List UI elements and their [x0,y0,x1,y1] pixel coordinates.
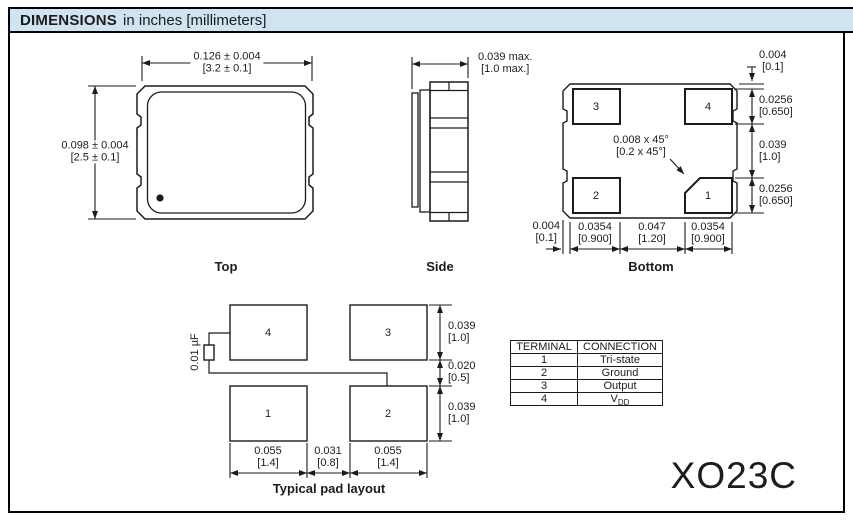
dim-bottom-bottom-2: 0.047 [1.20] [638,222,666,245]
dim-inches: 0.039 [448,321,476,333]
dim-layout-bottom-0: 0.055 [1.4] [254,446,282,469]
table-header-row: TERMINAL CONNECTION [511,341,663,354]
connection-cell: Output [578,380,663,393]
dim-mm: [3.2 ± 0.1] [193,63,260,75]
dim-inches: 0.047 [638,222,666,234]
dim-layout-bottom-1: 0.031 [0.8] [314,446,342,469]
dim-inches: 0.0256 [759,95,793,107]
pin1-marker-dot [156,194,163,201]
dim-inches: 0.098 ± 0.004 [61,141,128,153]
top-view [88,56,313,219]
dim-layout-bottom-2: 0.055 [1.4] [374,446,402,469]
chamfer-leader-arrow [670,159,684,174]
dim-inches: 0.039 max. [478,52,532,64]
side-view-cover [412,93,418,207]
dim-inches: 0.126 ± 0.004 [193,52,260,64]
vdd-subscript: DD [618,398,630,407]
bottom-pad-2-label: 2 [593,190,599,202]
dim-mm: [0.1] [532,233,560,245]
dim-inches: 0.0256 [759,184,793,196]
layout-pad-2-label: 2 [385,408,391,420]
side-view-label: Side [426,259,453,274]
dim-bottom-right-0: 0.004 [0.1] [759,50,787,73]
dim-bottom-right-3: 0.0256 [0.650] [759,184,793,207]
bottom-view-label: Bottom [628,259,674,274]
layout-pad-4-label: 4 [265,327,271,339]
part-number: XO23C [671,457,797,495]
layout-pad-1-label: 1 [265,408,271,420]
table-row: 3 Output [511,380,663,393]
dim-inches: 0.004 [759,50,787,62]
pad-layout-label: Typical pad layout [273,481,385,496]
dim-side-height: 0.039 max. [1.0 max.] [478,52,532,75]
capacitor-value-label: 0.01 µF [189,333,201,371]
table-header-connection: CONNECTION [578,341,663,354]
dim-mm: [0.650] [759,107,793,119]
dim-layout-right-2: 0.039 [1.0] [448,402,476,425]
dim-mm: [2.5 ± 0.1] [61,152,128,164]
dim-top-height: 0.098 ± 0.004 [2.5 ± 0.1] [58,141,131,164]
dim-layout-right-0: 0.039 [1.0] [448,321,476,344]
dim-mm: [1.0] [759,152,787,164]
dim-mm: [1.0 max.] [478,64,532,76]
dim-mm: [0.5] [448,373,476,385]
connection-cell: VDD [578,393,663,406]
dim-bottom-chamfer: 0.008 x 45° [0.2 x 45°] [613,135,669,158]
dim-mm: [1.0] [448,414,476,426]
side-height-dimension [412,57,468,89]
top-view-label: Top [215,259,238,274]
table-row: 2 Ground [511,367,663,380]
dim-inches: 0.004 [532,221,560,233]
vdd-base: V [611,393,618,405]
dim-bottom-right-1: 0.0256 [0.650] [759,95,793,118]
dim-mm: [0.650] [759,196,793,208]
dim-inches: 0.055 [254,446,282,458]
dim-mm: [1.4] [254,458,282,470]
dim-inches: 0.020 [448,361,476,373]
dim-inches: 0.031 [314,446,342,458]
bottom-pad-3-label: 3 [593,101,599,113]
dim-mm: [0.900] [578,234,612,246]
dim-inches: 0.008 x 45° [613,135,669,147]
datasheet-dimensions-page: DIMENSIONS in inches [millimeters] [0,0,853,520]
dim-mm: [0.8] [314,458,342,470]
terminal-cell: 4 [511,393,578,406]
dim-inches: 0.0354 [691,222,725,234]
dim-inches: 0.039 [759,140,787,152]
connection-cell: Tri-state [578,354,663,367]
dim-mm: [0.2 x 45°] [613,147,669,159]
side-view-wall [420,90,430,212]
table-row: 1 Tri-state [511,354,663,367]
dim-inches: 0.039 [448,402,476,414]
dim-bottom-bottom-1: 0.0354 [0.900] [578,222,612,245]
dim-bottom-bottom-3: 0.0354 [0.900] [691,222,725,245]
side-view [412,57,468,221]
side-view-body [430,82,468,221]
dim-inches: 0.055 [374,446,402,458]
dim-mm: [0.900] [691,234,725,246]
bottom-pad-1-label: 1 [705,190,711,202]
terminal-cell: 1 [511,354,578,367]
terminal-cell: 3 [511,380,578,393]
top-view-lid [148,92,306,213]
dim-mm: [0.1] [759,62,787,74]
dim-mm: [1.4] [374,458,402,470]
dim-top-width: 0.126 ± 0.004 [3.2 ± 0.1] [190,52,263,75]
bottom-pad-4-label: 4 [705,101,711,113]
dim-mm: [1.0] [448,333,476,345]
table-row: 4 VDD [511,393,663,406]
dim-layout-right-1: 0.020 [0.5] [448,361,476,384]
dim-bottom-right-2: 0.039 [1.0] [759,140,787,163]
table-header-terminal: TERMINAL [511,341,578,354]
side-view-castellation-lines [430,82,468,221]
terminal-cell: 2 [511,367,578,380]
capacitor-symbol [204,345,214,360]
dim-inches: 0.0354 [578,222,612,234]
connection-cell: Ground [578,367,663,380]
layout-pad-3-label: 3 [385,327,391,339]
dim-bottom-bottom-0: 0.004 [0.1] [532,221,560,244]
dim-mm: [1.20] [638,234,666,246]
terminal-connection-table: TERMINAL CONNECTION 1 Tri-state 2 Ground… [510,340,663,406]
